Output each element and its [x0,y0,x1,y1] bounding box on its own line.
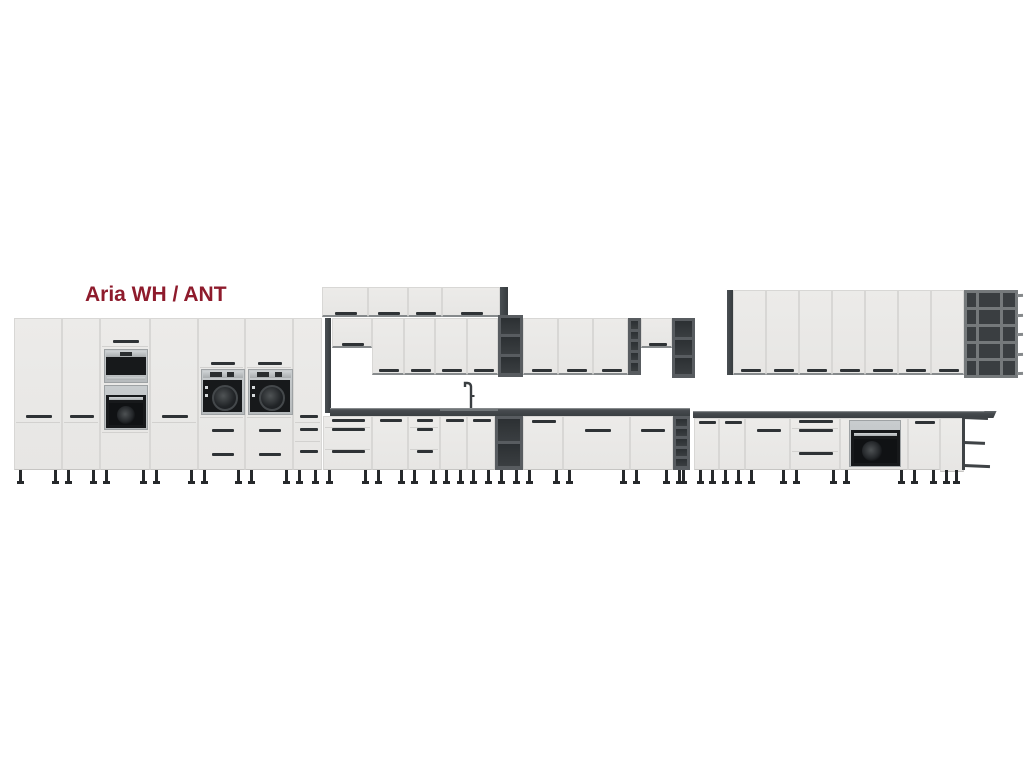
base-end-shelf [940,414,990,470]
cabinet-leg [362,470,369,485]
door-handle [259,429,281,432]
leg-foot [188,481,195,484]
base-cabinet [372,416,408,470]
shelf-compartment [675,340,692,356]
cabinet-leg [398,470,405,485]
cabinet-leg [633,470,640,485]
leg-foot [793,481,800,484]
oven-window [854,439,897,463]
door-handle [473,419,491,422]
door-handle [332,450,365,453]
door-handle [939,369,959,372]
base-cabinet [719,418,745,470]
cabinet-leg [296,470,303,485]
wall-cabinet-tall [799,290,832,375]
door-handle [380,419,402,422]
leg-foot [90,481,97,484]
shelf-compartment [967,361,976,375]
base-drawer-unit [408,416,440,470]
door-handle [799,429,833,432]
cabinet-leg [201,470,208,485]
door-handle [212,453,234,456]
shelf-compartment [1003,293,1015,307]
door-seam [16,422,60,423]
cabinet-leg [188,470,195,485]
door-handle [532,369,552,372]
tall-compact-oven-housing [198,318,245,470]
built-in-compact-oven [248,369,293,415]
cabinet-leg [553,470,560,485]
leg-foot [485,481,492,484]
tall-cabinet-narrow [293,318,322,470]
side-shelf-edge [1017,352,1023,355]
leg-foot [748,481,755,484]
door-seam [152,422,196,423]
door-handle [725,421,742,424]
leg-foot [398,481,405,484]
leg-foot [722,481,729,484]
shelf-compartment [501,337,520,353]
wall-cabinet [372,318,404,375]
shelf-compartment [676,419,687,426]
built-in-microwave [104,349,148,383]
side-shelf-edge [1017,313,1023,316]
control-display [120,352,132,356]
wall-open-shelf [498,315,523,377]
cabinet-leg [748,470,755,485]
wall-open-shelf [672,318,695,378]
shelf-compartment [676,429,687,436]
worktop [330,408,690,416]
wall-cabinet-tall [832,290,865,375]
cabinet-leg [911,470,918,485]
door-handle [649,343,667,346]
door-handle [259,453,281,456]
control-display [210,372,222,377]
door-handle [26,415,52,418]
tall-cabinet [62,318,100,470]
built-in-oven [104,385,148,430]
door-handle [699,421,716,424]
cabinet-leg [498,470,505,485]
door-handle [211,362,235,365]
leg-foot [470,481,477,484]
leg-foot [663,481,670,484]
wall-cabinet-tall [898,290,931,375]
cabinet-leg [326,470,333,485]
wall-open-shelf-narrow [628,318,641,375]
leg-foot [780,481,787,484]
base-cabinet [523,416,563,470]
wall-grid-shelf [964,290,1018,378]
oven-window-glow [117,406,135,424]
leg-foot [235,481,242,484]
leg-foot [201,481,208,484]
top-box-cabinet [408,287,442,317]
leg-foot [65,481,72,484]
leg-foot [457,481,464,484]
control-strip [250,371,291,378]
cabinet-leg [411,470,418,485]
wall-cabinet [435,318,467,375]
shelf-compartment [979,293,1000,307]
cabinet-leg [248,470,255,485]
cabinet-leg [513,470,520,485]
leg-foot [430,481,437,484]
leg-foot [140,481,147,484]
door-handle [446,419,464,422]
door-handle [567,369,587,372]
cabinet-leg [566,470,573,485]
wall-cabinet [558,318,593,375]
wall-cabinet-tall [865,290,898,375]
leg-foot [930,481,937,484]
door-handle [332,419,365,422]
shelf-compartment [501,357,520,373]
shelf-compartment [498,444,520,466]
door-handle [774,369,794,372]
shelf-compartment [967,293,976,307]
door-handle [602,369,622,372]
door-handle [332,428,365,431]
door-handle [379,369,399,372]
cabinet-leg [153,470,160,485]
tall-side-panel [325,318,331,413]
door-seam [247,367,291,368]
cabinet-leg [235,470,242,485]
door-handle [417,419,433,422]
base-drawer-unit [790,418,840,470]
product-line-title: Aria WH / ANT [85,283,227,307]
appliance-door [203,380,242,412]
faucet-icon [462,381,476,408]
door-handle [840,369,860,372]
leg-foot [830,481,837,484]
cabinet-leg [17,470,24,485]
door-button [252,386,255,389]
oven-door [851,430,900,466]
cabinet-leg [735,470,742,485]
cabinet-leg [140,470,147,485]
cabinet-leg [103,470,110,485]
built-in-compact-oven [201,369,245,415]
leg-foot [153,481,160,484]
cabinet-leg [722,470,729,485]
base-cabinet [908,418,940,470]
cabinet-leg [709,470,716,485]
shelf-compartment [979,310,1000,324]
leg-foot [680,481,687,484]
shelf-compartment [979,361,1000,375]
oven-window [109,403,143,425]
cabinet-leg [830,470,837,485]
door-handle [641,429,665,432]
door-handle [585,429,611,432]
leg-foot [296,481,303,484]
shelf-compartment [676,439,687,446]
top-box-cabinet [322,287,368,317]
cabinet-leg [485,470,492,485]
door-seam [295,441,320,442]
cabinet-leg [283,470,290,485]
door-handle [342,343,364,346]
shelf-compartment [498,419,520,441]
base-cabinet [630,416,673,470]
base-cabinet-wide [745,418,790,470]
base-open-shelf [495,416,523,470]
base-open-shelf-narrow [673,416,690,470]
microwave-glass [106,351,146,375]
base-sink-cabinet [467,416,495,470]
base-drawer-unit [323,416,372,470]
shelf-compartment [1003,344,1015,358]
door-handle [300,415,318,418]
cabinet-leg [65,470,72,485]
leg-foot [898,481,905,484]
shelf-compartment [631,332,638,340]
door-handle [212,429,234,432]
door-handle [532,420,556,423]
door-handle [300,450,318,453]
door-handle [757,429,781,432]
wall-cabinet [467,318,498,375]
tall-compact-oven-housing [245,318,293,470]
leg-foot [709,481,716,484]
leg-foot [248,481,255,484]
shelf-compartment [967,344,976,358]
door-handle [915,421,935,424]
shelf-compartment [979,327,1000,341]
cabinet-leg [943,470,950,485]
leg-foot [103,481,110,484]
round-window [212,385,238,411]
base-cabinet [694,418,719,470]
door-handle [799,420,833,423]
shelf-compartment [967,327,976,341]
door-seam [247,417,291,418]
round-window [259,385,285,411]
leg-foot [362,481,369,484]
cabinet-leg [52,470,59,485]
door-handle [416,312,436,315]
leg-foot [498,481,505,484]
shelf-compartment [631,342,638,350]
door-handle [799,452,833,455]
base-cabinet-wide [563,416,630,470]
door-seam [200,367,243,368]
open-end-shelf [964,464,990,468]
leg-foot [735,481,742,484]
door-handle [474,369,494,372]
door-handle [378,312,400,315]
door-handle [258,362,282,365]
shelf-compartment [1003,310,1015,324]
carcass-side-panel [500,287,508,318]
leg-foot [943,481,950,484]
open-end-shelf [964,416,988,420]
door-handle [162,415,188,418]
leg-foot [411,481,418,484]
shelf-compartment [967,310,976,324]
leg-foot [375,481,382,484]
shelf-compartment [631,353,638,361]
leg-foot [697,481,704,484]
cabinet-leg [898,470,905,485]
cabinet-leg [430,470,437,485]
cabinet-leg [793,470,800,485]
leg-foot [312,481,319,484]
door-seam [102,432,148,433]
tall-cabinet [150,318,198,470]
cabinet-leg [443,470,450,485]
door-handle [417,450,433,453]
shelf-compartment [675,321,692,337]
leg-foot [526,481,533,484]
leg-foot [513,481,520,484]
sink-rim [440,409,498,411]
door-handle [442,369,462,372]
wall-cabinet-tall [931,290,964,375]
leg-foot [52,481,59,484]
base-oven-housing [840,418,908,470]
leg-foot [953,481,960,484]
open-end-shelf [964,441,985,445]
top-box-cabinet [368,287,408,317]
cabinet-leg [697,470,704,485]
appliance-door [250,380,290,412]
door-seam [102,346,148,347]
door-handle [873,369,893,372]
tall-cabinet [14,318,62,470]
cabinet-leg [663,470,670,485]
wall-flap-cabinet [332,318,372,348]
oven-window-glow [862,441,882,461]
leg-foot [911,481,918,484]
wall-cabinet [523,318,558,375]
cabinet-leg [953,470,960,485]
shelf-compartment [501,318,520,334]
door-handle [300,428,318,431]
door-handle [70,415,94,418]
built-in-oven [849,420,901,467]
top-box-cabinet [442,287,500,317]
side-shelf-edge [1017,294,1023,297]
cabinet-leg [470,470,477,485]
oven-handle [854,433,897,436]
leg-foot [620,481,627,484]
door-handle [741,369,761,372]
side-shelf-edge [1017,333,1023,336]
cabinet-leg [930,470,937,485]
door-handle [113,340,139,343]
shelf-compartment [631,363,638,371]
shelf-compartment [979,344,1000,358]
door-handle [461,312,483,315]
door-button [205,386,208,389]
cabinet-leg [457,470,464,485]
door-button [205,394,208,397]
shelf-compartment [631,321,638,329]
wall-cabinet [404,318,435,375]
wall-cabinet-tall [733,290,766,375]
control-button [227,372,234,377]
cabinet-leg [620,470,627,485]
oven-handle [109,397,143,400]
leg-foot [443,481,450,484]
wall-flap-cabinet [641,318,672,348]
cabinet-leg [843,470,850,485]
door-seam [295,422,320,423]
leg-foot [843,481,850,484]
door-handle [906,369,926,372]
control-strip [203,371,243,378]
control-button [275,372,282,377]
door-button [252,394,255,397]
tall-oven-housing [100,318,150,470]
wall-cabinet-tall [766,290,799,375]
cabinet-leg [90,470,97,485]
microwave-handle [107,377,145,380]
base-sink-cabinet [440,416,467,470]
control-display [257,372,269,377]
shelf-compartment [1003,361,1015,375]
cabinet-leg [780,470,787,485]
door-handle [411,369,431,372]
cabinet-leg [375,470,382,485]
leg-foot [553,481,560,484]
door-handle [335,312,357,315]
leg-foot [283,481,290,484]
oven-door [106,395,146,428]
wall-cabinet [593,318,628,375]
cabinet-leg [312,470,319,485]
cabinet-leg [526,470,533,485]
shelf-compartment [675,358,692,374]
door-seam [200,417,243,418]
leg-foot [17,481,24,484]
end-panel [940,418,964,472]
door-seam [64,422,98,423]
door-handle [417,428,433,431]
leg-foot [633,481,640,484]
kitchen-product-render: Aria WH / ANT [0,0,1024,768]
shelf-compartment [1003,327,1015,341]
shelf-compartment [676,449,687,456]
cabinet-leg [680,470,687,485]
shelf-compartment [676,459,687,466]
door-handle [807,369,827,372]
leg-foot [566,481,573,484]
side-shelf-edge [1017,372,1023,375]
leg-foot [326,481,333,484]
